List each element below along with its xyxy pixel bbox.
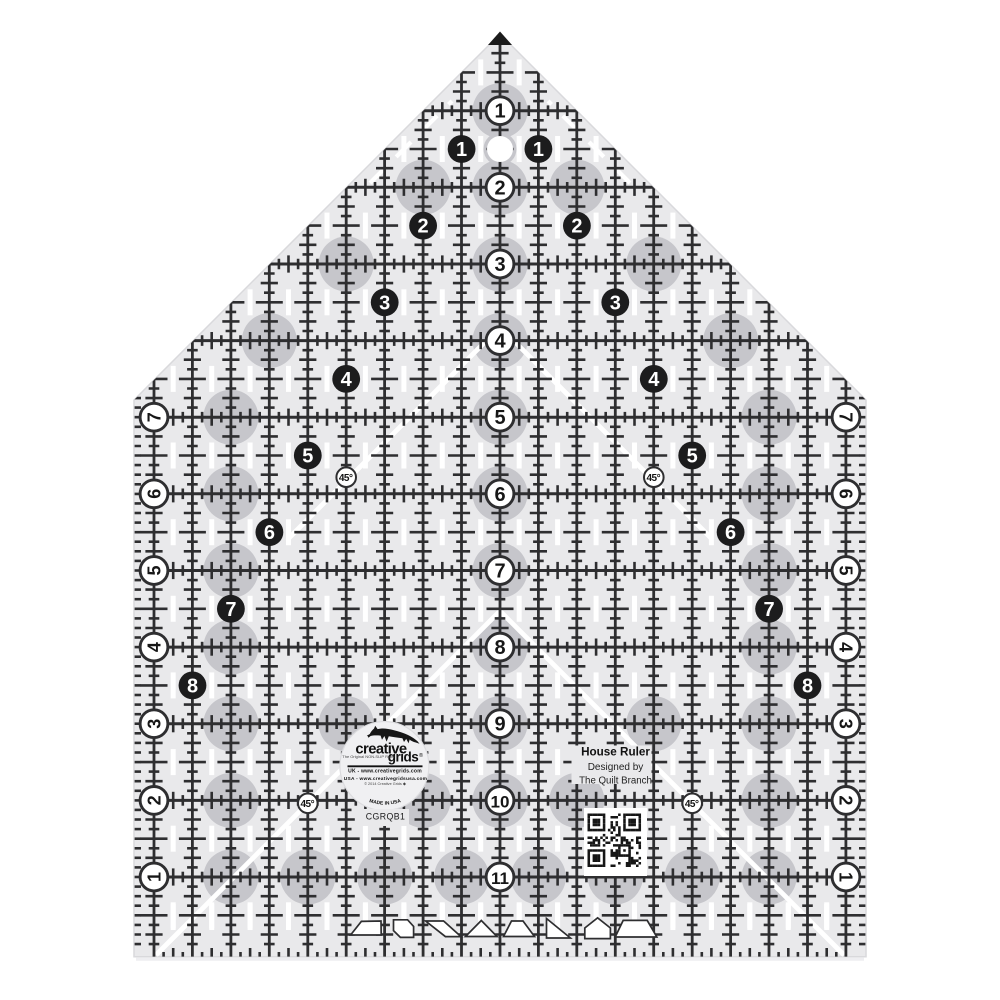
svg-text:3: 3 bbox=[144, 719, 164, 729]
svg-text:4: 4 bbox=[648, 369, 660, 391]
svg-text:The Original NON-SLIP Ruler: The Original NON-SLIP Ruler bbox=[342, 754, 395, 759]
svg-text:5: 5 bbox=[144, 565, 164, 575]
svg-text:7: 7 bbox=[225, 599, 236, 621]
svg-text:3: 3 bbox=[836, 719, 856, 729]
svg-text:1: 1 bbox=[456, 139, 467, 161]
svg-text:3: 3 bbox=[610, 292, 621, 314]
svg-text:4: 4 bbox=[494, 331, 506, 353]
svg-text:7: 7 bbox=[764, 599, 775, 621]
svg-text:1: 1 bbox=[144, 872, 164, 882]
svg-text:6: 6 bbox=[144, 489, 164, 499]
svg-text:11: 11 bbox=[491, 869, 509, 888]
svg-text:6: 6 bbox=[836, 489, 856, 499]
svg-text:4: 4 bbox=[836, 642, 856, 652]
svg-text:2: 2 bbox=[418, 216, 429, 238]
svg-text:4: 4 bbox=[341, 369, 353, 391]
svg-text:2: 2 bbox=[494, 177, 505, 199]
svg-text:3: 3 bbox=[494, 254, 505, 276]
svg-text:Designed by: Designed by bbox=[588, 762, 644, 773]
svg-text:6: 6 bbox=[264, 522, 275, 544]
svg-text:5: 5 bbox=[836, 565, 856, 575]
svg-text:45°: 45° bbox=[339, 473, 353, 484]
svg-text:1: 1 bbox=[836, 872, 856, 882]
svg-text:3: 3 bbox=[379, 292, 390, 314]
svg-text:8: 8 bbox=[187, 675, 198, 697]
svg-text:®: ® bbox=[419, 752, 423, 759]
svg-text:10: 10 bbox=[491, 792, 510, 811]
svg-text:© 2014 Creative Grids ◆: © 2014 Creative Grids ◆ bbox=[364, 782, 407, 786]
svg-text:7: 7 bbox=[836, 412, 856, 422]
svg-text:6: 6 bbox=[494, 484, 505, 506]
svg-text:1: 1 bbox=[533, 139, 544, 161]
svg-text:2: 2 bbox=[836, 795, 856, 805]
svg-text:The Quilt Branch: The Quilt Branch bbox=[579, 776, 652, 787]
svg-text:5: 5 bbox=[687, 446, 698, 468]
svg-text:5: 5 bbox=[302, 446, 313, 468]
svg-text:45°: 45° bbox=[300, 799, 314, 810]
svg-text:7: 7 bbox=[144, 412, 164, 422]
svg-text:8: 8 bbox=[802, 675, 813, 697]
svg-text:45°: 45° bbox=[646, 473, 660, 484]
svg-text:2: 2 bbox=[571, 216, 582, 238]
svg-text:8: 8 bbox=[494, 637, 505, 659]
svg-text:House Ruler: House Ruler bbox=[581, 746, 650, 759]
svg-text:4: 4 bbox=[144, 642, 164, 652]
svg-text:45°: 45° bbox=[685, 799, 699, 810]
svg-text:7: 7 bbox=[494, 561, 505, 583]
svg-text:CGRQB1: CGRQB1 bbox=[366, 812, 406, 822]
svg-text:UK - www.creativegrids.com: UK - www.creativegrids.com bbox=[348, 768, 422, 774]
svg-text:2: 2 bbox=[144, 795, 164, 805]
svg-text:1: 1 bbox=[494, 101, 505, 123]
svg-text:5: 5 bbox=[494, 407, 505, 429]
svg-text:9: 9 bbox=[494, 714, 505, 736]
svg-text:6: 6 bbox=[725, 522, 736, 544]
